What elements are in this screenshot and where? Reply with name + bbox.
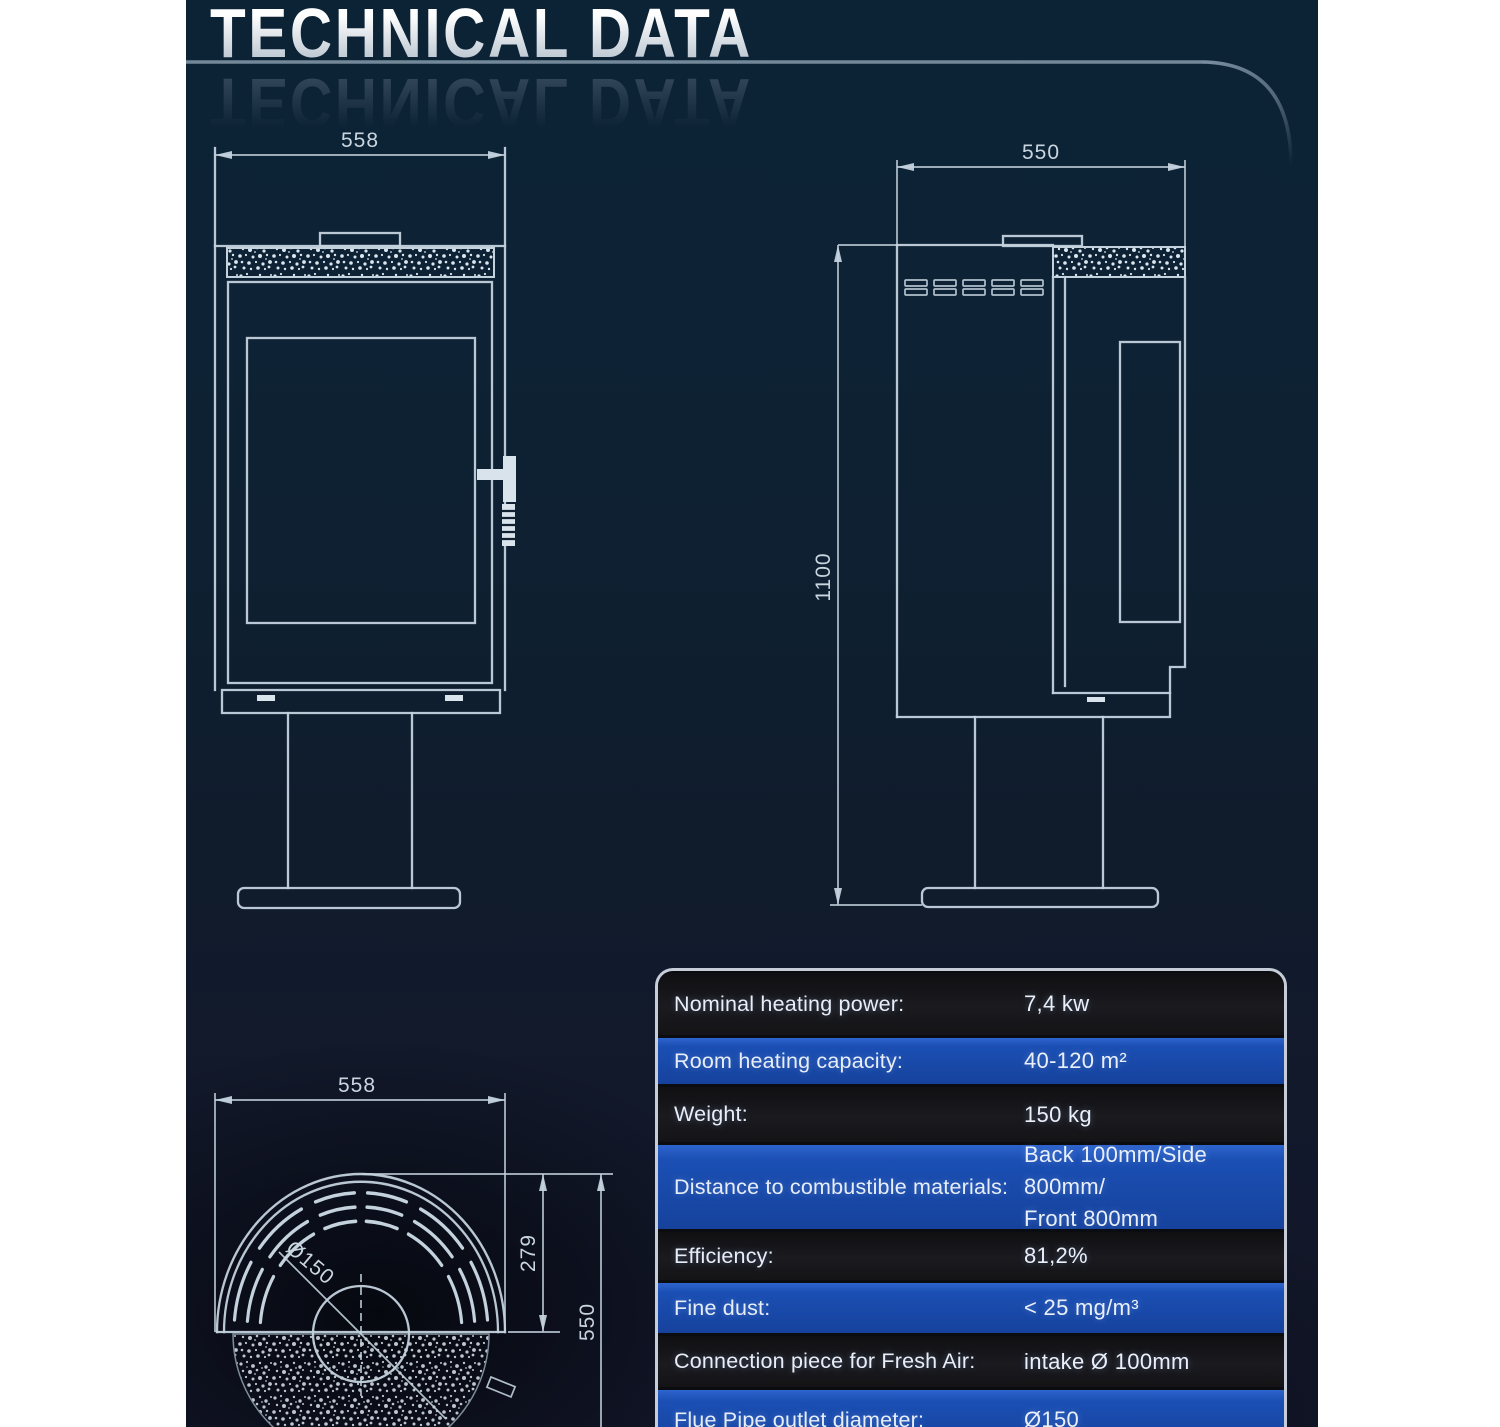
spec-row-weight: Weight: 150 kg bbox=[658, 1087, 1284, 1142]
spec-label: Flue Pipe outlet diameter: bbox=[674, 1408, 1024, 1427]
technical-data-page: TECHNICAL DATA TECHNICAL DATA bbox=[0, 0, 1500, 1427]
spec-value: 81,2% bbox=[1024, 1240, 1284, 1272]
spec-label: Efficiency: bbox=[674, 1244, 1024, 1269]
spec-table: Nominal heating power: 7,4 kw Room heati… bbox=[655, 968, 1287, 1427]
side-vent-slots bbox=[905, 280, 1043, 295]
spec-row-efficiency: Efficiency: 81,2% bbox=[658, 1232, 1284, 1280]
front-view-drawing: 558 bbox=[215, 129, 516, 908]
top-width-dim: 558 bbox=[338, 1074, 376, 1097]
spec-value: intake Ø 100mm bbox=[1024, 1346, 1284, 1378]
spec-value: 7,4 kw bbox=[1024, 988, 1284, 1020]
side-height-dim: 1100 bbox=[812, 552, 835, 601]
spec-value: 40-120 m² bbox=[1024, 1045, 1284, 1077]
top-view-arc-body bbox=[217, 1174, 505, 1332]
spec-value: < 25 mg/m³ bbox=[1024, 1292, 1284, 1324]
spec-row-fresh-air-connection: Connection piece for Fresh Air: intake Ø… bbox=[658, 1336, 1284, 1387]
spec-row-distance-to-combustibles: Distance to combustible materials: Back … bbox=[658, 1145, 1284, 1229]
navy-panel: TECHNICAL DATA TECHNICAL DATA bbox=[186, 0, 1318, 1427]
spec-value: Back 100mm/Side 800mm/Front 800mm bbox=[1024, 1139, 1284, 1235]
spec-row-room-heating-capacity: Room heating capacity: 40-120 m² bbox=[658, 1038, 1284, 1084]
top-radius-dim: 279 bbox=[517, 1234, 540, 1272]
spec-row-flue-pipe-diameter: Flue Pipe outlet diameter: Ø150 bbox=[658, 1390, 1284, 1427]
spec-label: Room heating capacity: bbox=[674, 1049, 1024, 1074]
spec-label: Fine dust: bbox=[674, 1296, 1024, 1321]
spec-value: Ø150 bbox=[1024, 1404, 1284, 1427]
side-depth-dim: 550 bbox=[1022, 141, 1060, 164]
spec-row-nominal-heating-power: Nominal heating power: 7,4 kw bbox=[658, 973, 1284, 1035]
side-view-drawing: 550 1100 bbox=[812, 141, 1185, 907]
spec-row-fine-dust: Fine dust: < 25 mg/m³ bbox=[658, 1283, 1284, 1333]
spec-label: Weight: bbox=[674, 1102, 1024, 1127]
top-depth-dim: 550 bbox=[576, 1303, 599, 1341]
spec-label: Connection piece for Fresh Air: bbox=[674, 1349, 1024, 1374]
spec-value: 150 kg bbox=[1024, 1099, 1284, 1131]
top-view-drawing: 558 279 550 bbox=[215, 1074, 613, 1427]
spec-label: Distance to combustible materials: bbox=[674, 1175, 1024, 1200]
front-width-dim: 558 bbox=[341, 129, 379, 152]
spec-label: Nominal heating power: bbox=[674, 992, 1024, 1017]
